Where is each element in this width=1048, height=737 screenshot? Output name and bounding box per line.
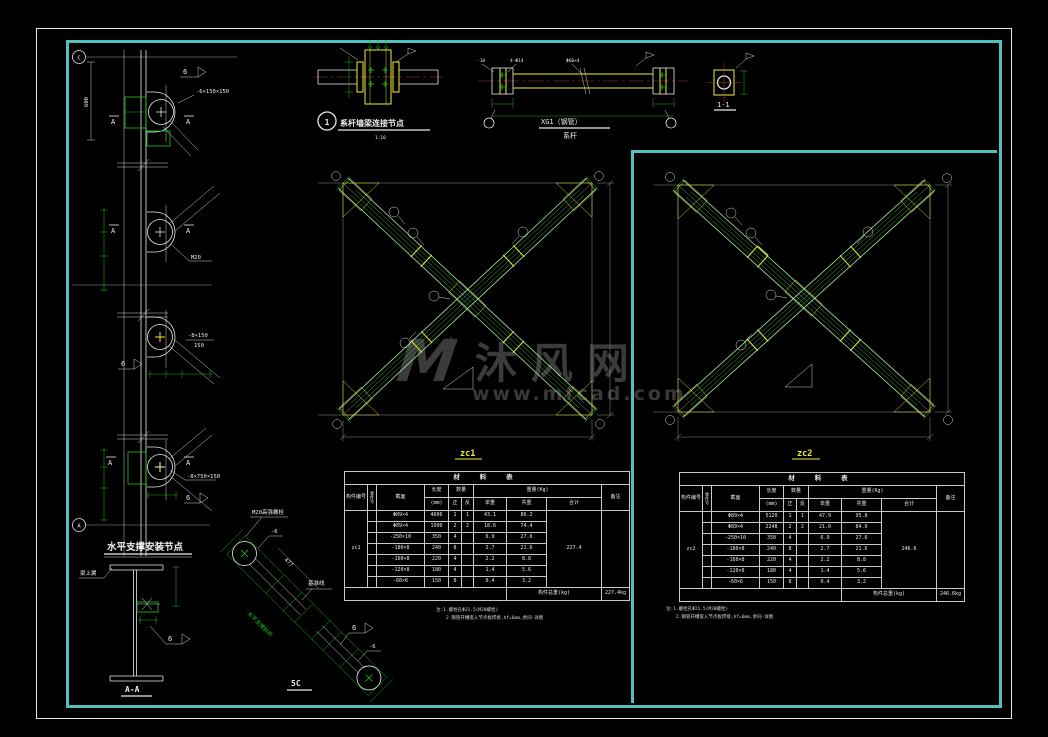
5c-bolt-label: M20高强螺栓: [252, 508, 284, 516]
grid-bubble-c: C: [77, 56, 80, 62]
col-header: 反: [797, 499, 809, 512]
material-table: 材 料 表 构件编号 零件号 截面 长度 数量 重量(Kg) 备注 (mm) 正…: [344, 471, 630, 601]
footer-label: 构件总重(kg): [507, 588, 602, 601]
section-1-1: 1-1: [706, 53, 754, 110]
weld-size: 6: [183, 68, 187, 76]
table-footer: 构件总重(kg) 246.6kg: [680, 589, 965, 602]
notes-zc2: 注:1.螺栓孔Φ21.5(M20螺栓) 2.钢管开槽嵌入节点板焊接,hf=6mm…: [666, 606, 773, 622]
footer-total: 246.6kg: [937, 589, 965, 602]
col-header: 重量(Kg): [809, 486, 937, 499]
col-header: 截面: [377, 485, 425, 511]
table-title: 材 料 表: [680, 473, 965, 486]
left-detail-title: 水平支撑安装节点: [107, 541, 184, 553]
zc2-label: zc2: [797, 449, 812, 459]
footer-label: 构件总重(kg): [842, 589, 937, 602]
col-header: 共重: [842, 499, 882, 512]
table-row: zc1Φ89×446061143.186.2227.4: [345, 511, 630, 522]
svg-text:A: A: [186, 227, 191, 235]
material-table: 材 料 表 构件编号 零件号 截面 长度 数量 重量(Kg) 备注 (mm) 正…: [679, 472, 965, 602]
5c-label: 5C: [291, 679, 301, 688]
col-header: 长度: [425, 485, 449, 498]
5c-weld-size: 6: [352, 624, 356, 632]
xg1-elevation: -10 4-Φ14 Φ60×4 XG1（钢管） 系杆: [477, 52, 688, 140]
col-header: 单重: [809, 499, 842, 512]
5c-member-note: 水平支撑斜杆: [246, 610, 275, 639]
sum-cell: 227.4: [547, 511, 602, 588]
xg1-pipe-label: Φ60×4: [566, 58, 580, 64]
col-header: 备注: [602, 485, 630, 511]
col-header: 构件编号: [680, 486, 703, 512]
col-header: 构件编号: [345, 485, 368, 511]
grid-bubble-a: A: [77, 524, 81, 530]
5c-plate-end: -6: [369, 644, 376, 650]
cad-drawing-canvas: M+ 沐风网 www.mfcad.com C 600: [0, 0, 1048, 737]
col-header: 零件号: [368, 485, 377, 511]
col-header: 正: [784, 499, 797, 512]
col-header: 数量: [784, 486, 809, 499]
material-table-zc2: 材 料 表 构件编号 零件号 截面 长度 数量 重量(Kg) 备注 (mm) 正…: [679, 472, 955, 602]
col-header: 截面: [712, 486, 760, 512]
brace-zc2: zc2: [653, 173, 953, 460]
svg-text:A: A: [111, 227, 116, 235]
zc1-label: zc1: [460, 449, 475, 459]
svg-text:A: A: [186, 459, 191, 467]
plate-bottom-label: -8×750×150: [187, 474, 220, 480]
dim-600: 600: [84, 97, 90, 107]
plate-mid-label: -8×150: [188, 333, 208, 339]
svg-text:A: A: [108, 459, 113, 467]
col-header: 反: [462, 498, 474, 511]
plate-size-label: -6×150×150: [196, 89, 229, 95]
5c-plate-front: -6: [271, 529, 278, 535]
weld-size-2: 6: [121, 360, 125, 368]
col-header: 零件号: [703, 486, 712, 512]
5c-dim-477: 477: [283, 557, 294, 568]
col-header: 重量(Kg): [474, 485, 602, 498]
note-line: 2.钢管开槽嵌入节点板焊接,hf=6mm,余同-详图: [446, 615, 543, 623]
section-aa-label: A-A: [125, 685, 140, 694]
detail-1-bubble: 1: [325, 118, 330, 127]
section-a-a: 梁上翼 6 A-A: [79, 565, 190, 696]
left-column-detail: C 600 A: [72, 50, 237, 557]
detail-1-title: 系杆墙梁连接节点: [340, 118, 404, 128]
col-header: 单重: [474, 498, 507, 511]
plate-mid-denominator: 150: [194, 343, 204, 349]
section-11-label: 1-1: [717, 101, 730, 109]
xg1-subtitle: 系杆: [563, 131, 577, 140]
section-cut-marks: A A A A A A: [106, 116, 194, 467]
detail-1-connection: 1 系杆墙梁连接节点 1:10: [314, 40, 444, 141]
xg1-plate-label: -10: [477, 58, 485, 64]
weld-size-3: 6: [186, 494, 190, 502]
col-header: 合计: [882, 499, 937, 512]
table-title: 材 料 表: [345, 472, 630, 485]
bolt-label: M20: [191, 255, 201, 261]
xg1-name: XG1（钢管）: [541, 117, 582, 126]
xg1-hole-label: 4-Φ14: [510, 58, 524, 64]
note-line: 注:1.螺栓孔Φ21.5(M20螺栓): [436, 607, 543, 615]
note-line: 2.钢管开槽嵌入节点板焊接,hf=6mm,余同-详图: [676, 614, 773, 622]
note-line: 注:1.螺栓孔Φ21.5(M20螺栓): [666, 606, 773, 614]
footer-total: 227.4kg: [602, 588, 630, 601]
weld-size-aa: 6: [168, 635, 172, 643]
col-header: (mm): [425, 498, 449, 511]
col-header: 合计: [547, 498, 602, 511]
svg-text:A: A: [111, 118, 116, 126]
svg-text:A: A: [186, 118, 191, 126]
notes-zc1: 注:1.螺栓孔Φ21.5(M20螺栓) 2.钢管开槽嵌入节点板焊接,hf=6mm…: [436, 607, 543, 623]
flange-label: 梁上翼: [80, 569, 97, 577]
material-table-zc1: 材 料 表 构件编号 零件号 截面 长度 数量 重量(Kg) 备注 (mm) 正…: [344, 471, 629, 601]
col-header: 数量: [449, 485, 474, 498]
5c-datum-label: 基准线: [308, 579, 325, 587]
table-row: zc2Φ89×451201147.995.8246.6: [680, 512, 965, 523]
member-id-cell: zc2: [680, 512, 703, 589]
member-id-cell: zc1: [345, 511, 368, 588]
col-header: (mm): [760, 499, 784, 512]
sum-cell: 246.6: [882, 512, 937, 589]
col-header: 长度: [760, 486, 784, 499]
detail-1-scale: 1:10: [375, 135, 386, 141]
col-header: 正: [449, 498, 462, 511]
brace-zc1: zc1: [318, 172, 614, 460]
col-header: 共重: [507, 498, 547, 511]
cad-linework: C 600 A: [0, 0, 1048, 737]
col-header: 备注: [937, 486, 965, 512]
table-footer: 构件总重(kg) 227.4kg: [345, 588, 630, 601]
